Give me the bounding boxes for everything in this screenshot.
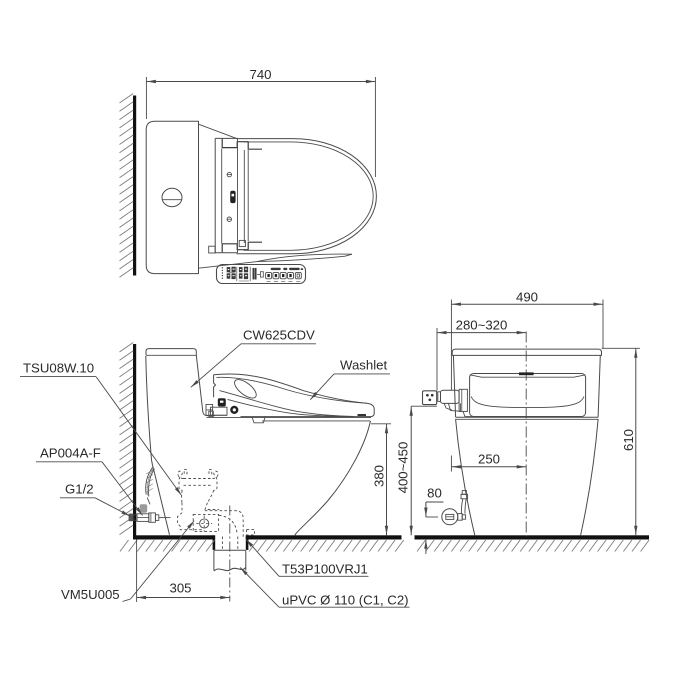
svg-text:uPVC Ø 110 (C1, C2): uPVC Ø 110 (C1, C2) (282, 593, 409, 608)
svg-text:CW625CDV: CW625CDV (243, 328, 315, 343)
svg-text:280~320: 280~320 (456, 318, 508, 333)
svg-text:400~450: 400~450 (396, 442, 411, 494)
svg-text:80: 80 (427, 486, 442, 501)
svg-text:380: 380 (372, 465, 387, 487)
svg-text:305: 305 (169, 581, 191, 596)
svg-text:740: 740 (249, 67, 271, 82)
svg-text:G1/2: G1/2 (65, 482, 94, 497)
svg-text:VM5U005: VM5U005 (61, 587, 120, 602)
svg-text:250: 250 (478, 452, 500, 467)
svg-text:490: 490 (516, 290, 538, 305)
svg-text:AP004A-F: AP004A-F (40, 446, 101, 461)
svg-text:TSU08W.10: TSU08W.10 (23, 361, 94, 376)
svg-text:610: 610 (621, 429, 636, 451)
svg-text:T53P100VRJ1: T53P100VRJ1 (282, 562, 368, 577)
svg-text:Washlet: Washlet (340, 357, 387, 372)
